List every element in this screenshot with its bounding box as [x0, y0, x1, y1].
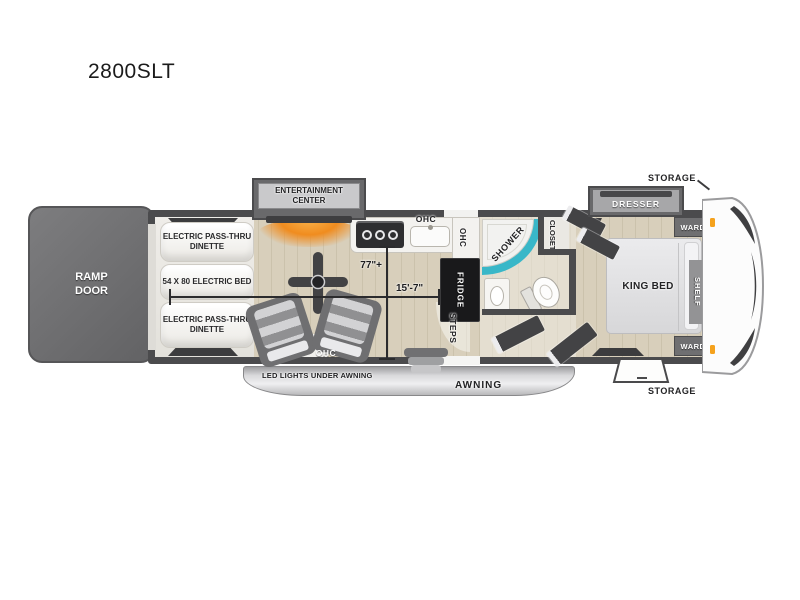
dim-width-cap-top — [379, 246, 395, 248]
bath-bottom-wall — [482, 309, 576, 315]
chair-cushion — [323, 295, 374, 345]
step-low — [411, 365, 441, 373]
dim-width-line — [386, 247, 388, 360]
dim-length-cap-right — [438, 289, 440, 305]
dim-width-cap-bottom — [379, 358, 395, 360]
dinette-front: ELECTRIC PASS-THRU DINETTE — [160, 222, 254, 262]
storage-top-label: STORAGE — [648, 173, 696, 183]
garage-rear-window — [168, 347, 238, 356]
dresser-panel: DRESSER — [593, 190, 679, 212]
page-title: 2800SLT — [88, 60, 175, 84]
king-bed: KING BED — [606, 238, 702, 334]
front-cap — [702, 190, 772, 382]
closet-label: CLOSET — [548, 218, 557, 252]
kitchen-ohc-side-label: OHC — [458, 228, 467, 262]
faucet — [428, 225, 433, 230]
dinette-front-label: ELECTRIC PASS-THRU DINETTE — [161, 232, 253, 252]
tv-bar — [266, 216, 352, 223]
bedroom-bottom-window — [592, 348, 644, 356]
dinette-rear-label: ELECTRIC PASS-THRU DINETTE — [161, 315, 253, 335]
dresser-label: DRESSER — [593, 199, 679, 209]
step-mid — [408, 357, 444, 365]
ramp-door-label: RAMP DOOR — [63, 271, 121, 299]
burner-2 — [375, 230, 385, 240]
burner-3 — [388, 230, 398, 240]
entry-steps-label: STEPS — [448, 303, 458, 353]
awning-label: AWNING — [455, 380, 502, 391]
stove-icon — [356, 221, 404, 248]
floorplan-canvas: 2800SLT RAMP DOOR ELECTRIC PASS-THRU DIN… — [0, 0, 800, 600]
shelf-label: SHELF — [693, 277, 702, 307]
dim-width-label: 77"+ — [340, 260, 382, 271]
vanity-basin — [490, 286, 504, 306]
led-lights-label: LED LIGHTS UNDER AWNING — [262, 371, 373, 380]
entertainment-label: ENTERTAINMENT CENTER — [259, 186, 359, 205]
bath-bedroom-wall — [569, 249, 576, 315]
ramp-door: RAMP DOOR — [28, 206, 155, 363]
step-rail — [404, 348, 448, 357]
dresser-top-strip — [600, 191, 672, 197]
storage-bottom-label: STORAGE — [648, 386, 696, 396]
dim-length-line — [170, 296, 440, 298]
storage-flap — [610, 356, 674, 386]
electric-bed: 54 X 80 ELECTRIC BED — [160, 264, 254, 300]
electric-bed-label: 54 X 80 ELECTRIC BED — [161, 277, 253, 287]
marker-light-top — [710, 218, 715, 227]
ramp-opening — [148, 224, 156, 350]
fireplace-glow — [258, 219, 360, 247]
storage-top-leader — [697, 180, 710, 191]
dim-length-cap-left — [169, 289, 171, 305]
marker-light-bottom — [710, 345, 715, 354]
fridge: FRIDGE — [440, 258, 480, 322]
toilet-bowl-inner — [537, 282, 555, 302]
kitchen-ohc-label: OHC — [404, 214, 448, 224]
burner-1 — [362, 230, 372, 240]
dinette-rear: ELECTRIC PASS-THRU DINETTE — [160, 302, 254, 348]
living-ohc-label: OHC — [306, 348, 346, 358]
king-bed-label: KING BED — [611, 281, 685, 292]
dim-length-label: 15'-7" — [396, 283, 423, 294]
kitchen-sink — [410, 226, 450, 247]
entertainment-panel: ENTERTAINMENT CENTER — [258, 183, 360, 209]
